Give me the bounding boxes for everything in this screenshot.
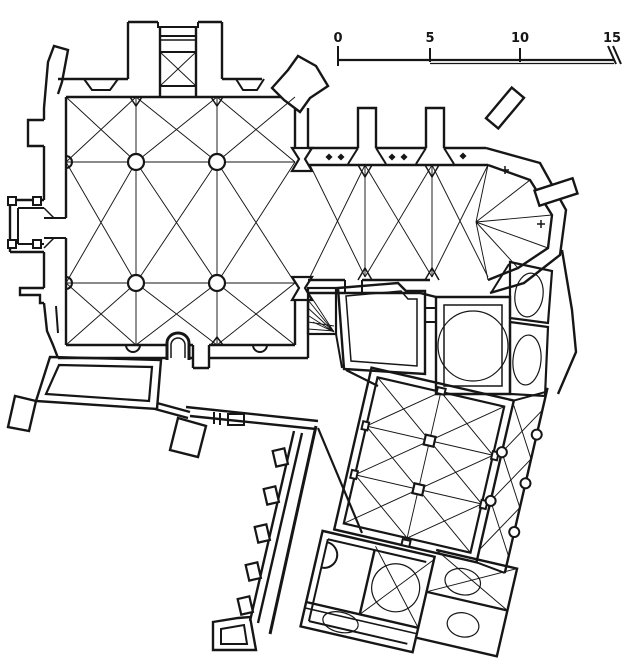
apse-angled-buttress xyxy=(535,178,578,206)
corridor-buttress xyxy=(273,448,288,466)
choir xyxy=(308,148,488,297)
northwest-annex xyxy=(44,46,68,108)
aisle-pier xyxy=(485,495,497,507)
sacristy-room xyxy=(510,262,552,323)
corridor-buttress xyxy=(246,562,261,580)
courtyard-room xyxy=(338,283,436,374)
oven-oval xyxy=(445,610,482,641)
aisle-pier xyxy=(531,429,543,441)
porch-corner-post xyxy=(33,197,41,205)
column xyxy=(209,275,225,291)
column xyxy=(209,154,225,170)
corridor-buttress xyxy=(264,486,279,504)
monastic-block xyxy=(301,346,559,663)
wall-dot xyxy=(337,153,344,160)
aisle-pier xyxy=(508,526,520,538)
west-porch xyxy=(8,197,66,252)
porch-corner-post xyxy=(8,240,16,248)
choir-buttresses xyxy=(325,108,466,164)
wall-respond xyxy=(350,470,358,479)
scale-label-0: 0 xyxy=(333,31,342,46)
scale-label-5: 5 xyxy=(425,31,434,46)
apse xyxy=(476,88,577,293)
boot-wall-end xyxy=(213,617,256,650)
porch-corner-post xyxy=(33,240,41,248)
wall-dot xyxy=(388,153,395,160)
nave-vault-ribs xyxy=(66,97,295,345)
hall-vault-ribs xyxy=(344,377,504,552)
scale-label-15: 15 xyxy=(603,31,621,46)
south-gallery xyxy=(8,357,190,431)
column xyxy=(128,275,144,291)
south-door xyxy=(193,345,209,368)
south-portal-inner xyxy=(171,338,185,358)
spiral-stair xyxy=(308,288,336,334)
hall-pier xyxy=(424,435,436,447)
corridor-buttress xyxy=(238,596,253,614)
wall-respond xyxy=(361,421,369,430)
right-boundary-wall xyxy=(558,250,576,394)
sacristy-room xyxy=(510,322,548,396)
west-annex xyxy=(8,396,36,431)
floor-plan-page: 0 5 10 15 xyxy=(0,0,632,663)
wall-respond xyxy=(401,539,410,547)
tower-vault-x xyxy=(160,52,196,86)
dome-oval xyxy=(511,334,543,386)
column xyxy=(128,154,144,170)
pointed-annex xyxy=(170,418,206,457)
corridor-buttress xyxy=(255,524,270,542)
scale-label-10: 10 xyxy=(511,31,529,46)
wall-respond xyxy=(437,387,446,395)
wall-dot xyxy=(459,152,466,159)
wall-dot xyxy=(325,153,332,160)
aisle-pier xyxy=(496,446,508,458)
cloister-corridor xyxy=(170,407,318,650)
wall-dot xyxy=(400,153,407,160)
hall-pier xyxy=(412,483,424,495)
aisle-pier xyxy=(519,477,531,489)
east-range-rooms xyxy=(416,550,517,656)
northeast-diagonal-buttress xyxy=(272,56,328,112)
porch-corner-post xyxy=(8,197,16,205)
chancel-pier xyxy=(292,148,312,171)
scale-bar: 0 5 10 15 xyxy=(333,31,621,66)
dome-circle xyxy=(438,311,508,381)
bell-tower xyxy=(128,22,222,96)
choir-vault-ribs xyxy=(310,165,488,277)
apse-angled-buttress xyxy=(486,88,524,129)
oven-oval xyxy=(442,565,483,598)
floor-plan-svg: 0 5 10 15 xyxy=(0,0,632,663)
